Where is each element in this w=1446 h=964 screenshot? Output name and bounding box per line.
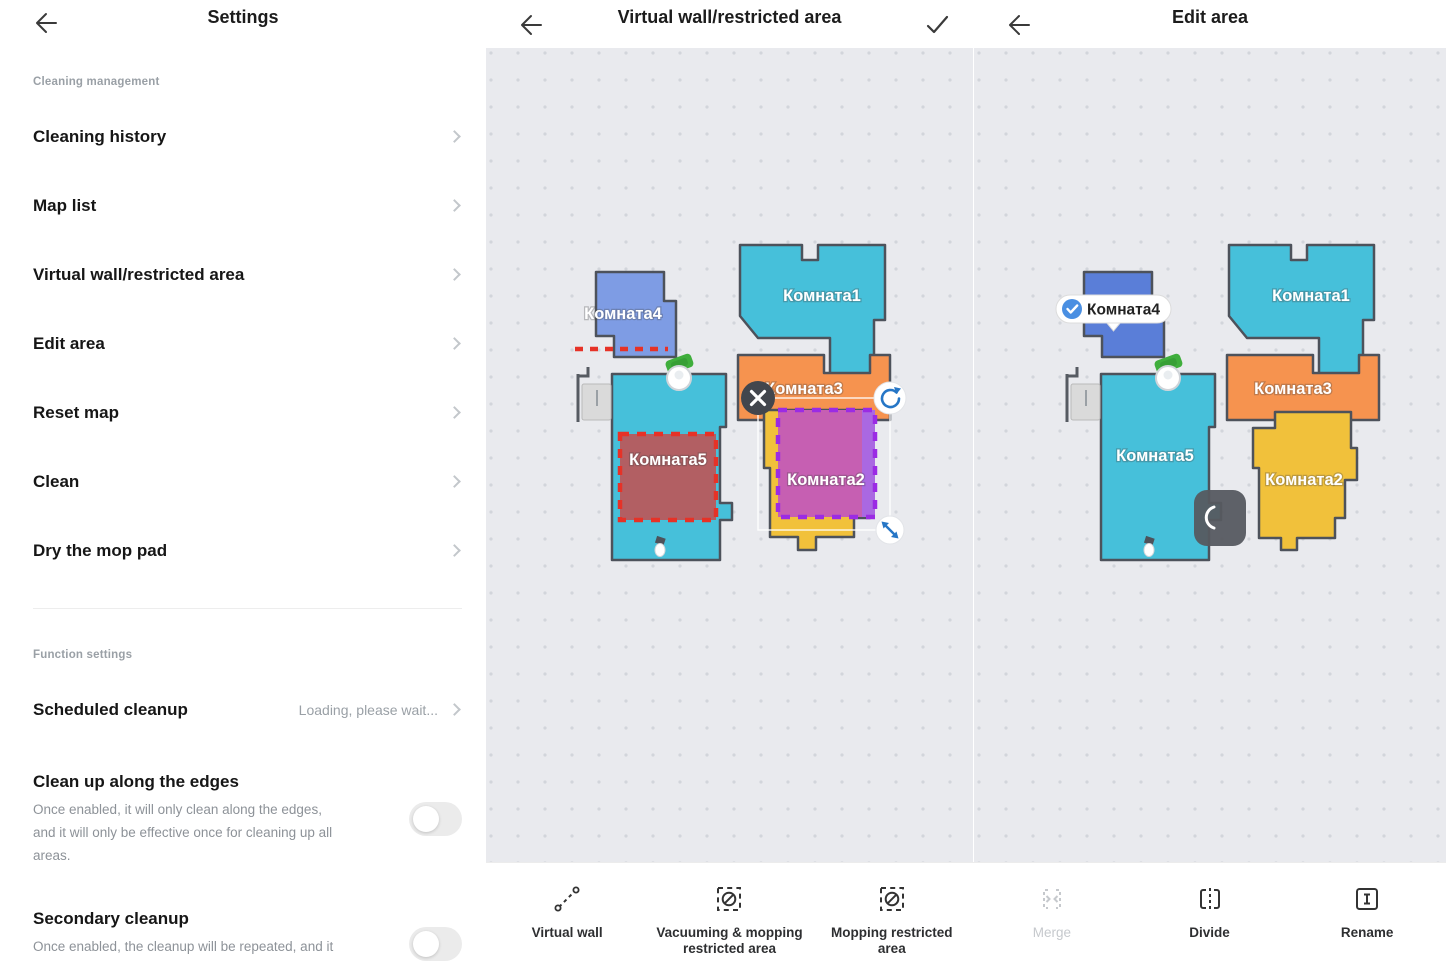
rename-icon bbox=[1351, 883, 1383, 915]
chevron-right-icon bbox=[448, 268, 461, 281]
section-divider bbox=[33, 608, 462, 609]
settings-header: Settings bbox=[0, 0, 486, 48]
secondary-cleanup-toggle[interactable] bbox=[409, 927, 462, 961]
merge-icon bbox=[1036, 883, 1068, 915]
resize-zone-button[interactable] bbox=[876, 516, 904, 544]
settings-item-edit-area[interactable]: Edit area bbox=[33, 309, 462, 378]
no-mop-zone-icon bbox=[876, 883, 908, 915]
furniture-icon bbox=[1194, 490, 1246, 546]
check-circle-icon bbox=[1062, 299, 1082, 319]
section-header: Cleaning management bbox=[33, 76, 462, 88]
virtual-wall-header: Virtual wall/restricted area bbox=[486, 0, 973, 48]
settings-item-clean[interactable]: Clean bbox=[33, 447, 462, 516]
edge-cleanup-toggle[interactable] bbox=[409, 802, 462, 836]
settings-item-cleaning-history[interactable]: Cleaning history bbox=[33, 102, 462, 171]
no-vacuum-mop-zone-icon bbox=[713, 883, 745, 915]
chevron-right-icon bbox=[448, 703, 461, 716]
room-label: Комната5 bbox=[629, 451, 707, 469]
object-icon bbox=[1144, 536, 1155, 557]
room-label: Комната3 bbox=[765, 380, 843, 398]
mopping-restricted-zone[interactable] bbox=[778, 410, 875, 517]
room-label: Комната1 bbox=[783, 287, 861, 305]
page-title: Virtual wall/restricted area bbox=[486, 7, 973, 28]
tool-merge: Merge bbox=[973, 863, 1131, 964]
tool-mopping-restricted-area[interactable]: Mopping restricted area bbox=[811, 863, 973, 964]
item-description: Once enabled, it will only clean along t… bbox=[33, 798, 345, 867]
robot-icon bbox=[667, 366, 691, 390]
confirm-check-icon[interactable] bbox=[923, 11, 951, 44]
settings-item-secondary-cleanup: Secondary cleanup Once enabled, the clea… bbox=[33, 907, 462, 958]
tool-virtual-wall[interactable]: Virtual wall bbox=[486, 863, 648, 964]
selected-room-name: Комната4 bbox=[1087, 302, 1160, 319]
room-label: Комната1 bbox=[1272, 287, 1350, 305]
section-header: Function settings bbox=[33, 649, 462, 661]
tool-divide[interactable]: Divide bbox=[1131, 863, 1289, 964]
chevron-right-icon bbox=[448, 475, 461, 488]
settings-item-map-list[interactable]: Map list bbox=[33, 171, 462, 240]
robot-vacuum-app: Settings Cleaning management Cleaning hi… bbox=[0, 0, 1446, 964]
settings-item-reset-map[interactable]: Reset map bbox=[33, 378, 462, 447]
settings-item-virtual-wall[interactable]: Virtual wall/restricted area bbox=[33, 240, 462, 309]
room-label: Комната2 bbox=[1265, 471, 1343, 489]
robot-icon bbox=[1156, 366, 1180, 390]
chevron-right-icon bbox=[448, 406, 461, 419]
tool-vacuum-mop-restricted-area[interactable]: Vacuuming & mopping restricted area bbox=[648, 863, 810, 964]
virtual-wall-panel: Virtual wall/restricted area bbox=[486, 0, 973, 862]
virtual-wall-icon bbox=[551, 883, 583, 915]
settings-item-edge-cleanup: Clean up along the edges Once enabled, i… bbox=[33, 770, 462, 867]
virtual-wall-map[interactable]: Комната1 Комната4 Комната3 Комната2 Комн… bbox=[486, 48, 973, 867]
bottom-toolbar: Virtual wall Vacuuming & mopping restric… bbox=[486, 862, 1446, 964]
chevron-right-icon bbox=[448, 130, 461, 143]
room-label: Комната2 bbox=[787, 471, 865, 489]
room-label: Комната4 bbox=[584, 305, 663, 323]
edit-area-map[interactable]: Комната1 Комната3 Комната2 Комната5 Комн… bbox=[974, 48, 1446, 867]
object-icon bbox=[655, 536, 666, 557]
settings-panel: Settings Cleaning management Cleaning hi… bbox=[0, 0, 486, 964]
tool-rename[interactable]: Rename bbox=[1288, 863, 1446, 964]
room-label: Комната5 bbox=[1116, 447, 1194, 465]
settings-list: Cleaning management Cleaning history Map… bbox=[0, 76, 486, 958]
edit-area-header: Edit area bbox=[974, 0, 1446, 48]
item-description: Once enabled, the cleanup will be repeat… bbox=[33, 935, 345, 958]
page-title: Edit area bbox=[974, 7, 1446, 28]
settings-item-dry-mop-pad[interactable]: Dry the mop pad bbox=[33, 516, 462, 585]
chevron-right-icon bbox=[448, 337, 461, 350]
divide-icon bbox=[1194, 883, 1226, 915]
chevron-right-icon bbox=[448, 544, 461, 557]
settings-item-scheduled-cleanup[interactable]: Scheduled cleanup Loading, please wait..… bbox=[33, 675, 462, 744]
page-title: Settings bbox=[0, 7, 486, 28]
delete-zone-button[interactable] bbox=[741, 381, 775, 415]
room-label: Комната3 bbox=[1254, 380, 1332, 398]
loading-status: Loading, please wait... bbox=[299, 702, 438, 718]
rotate-zone-button[interactable] bbox=[874, 382, 906, 414]
restricted-zone-red[interactable] bbox=[620, 434, 716, 520]
edit-area-panel: Edit area bbox=[973, 0, 1446, 862]
chevron-right-icon bbox=[448, 199, 461, 212]
